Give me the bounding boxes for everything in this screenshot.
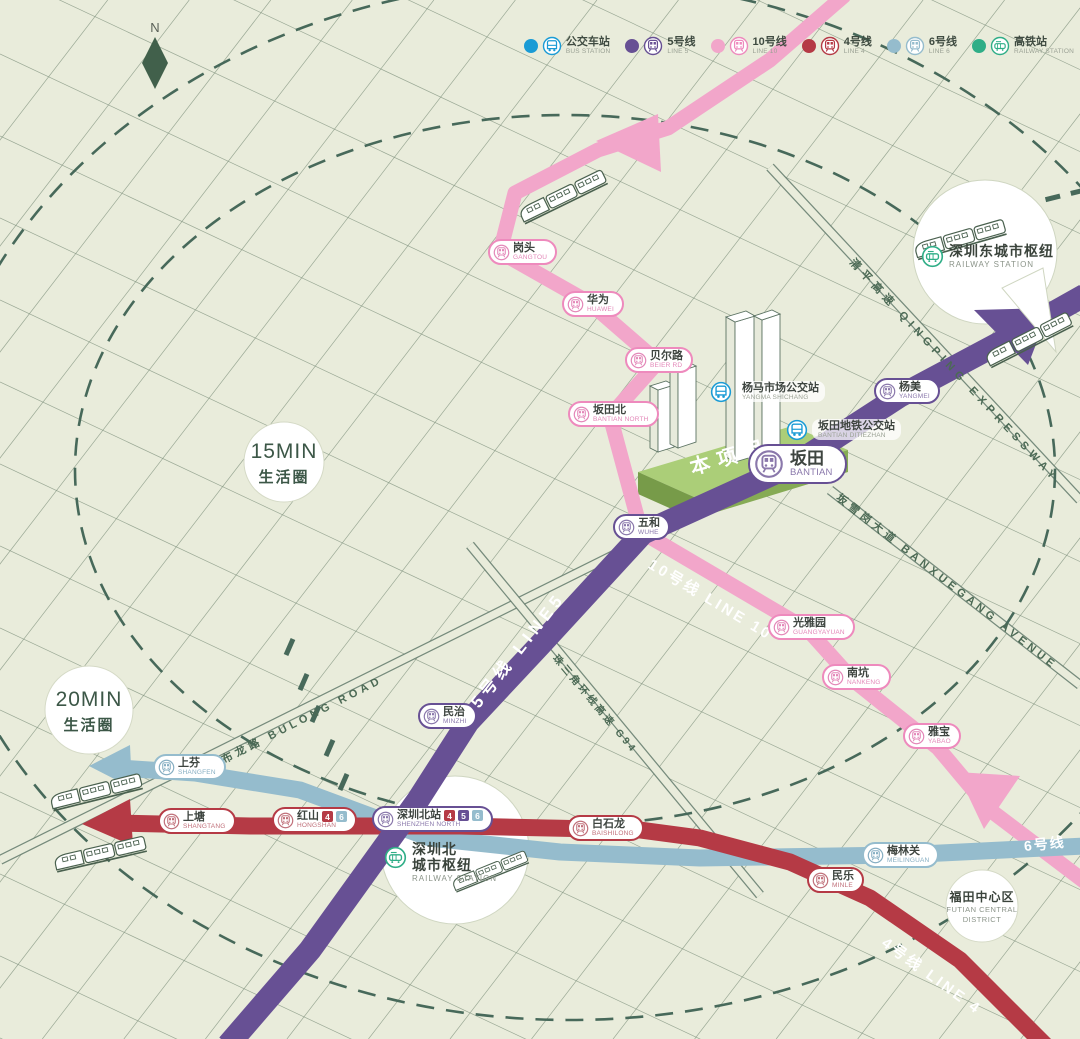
- futian-district-circle: 福田中心区 FUTIAN CENTRAL DISTRICT: [922, 888, 1042, 925]
- station-gangtou: 岗头 GANGTOU: [488, 239, 557, 265]
- station-shangtang: 上塘 SHANGTANG: [158, 808, 236, 834]
- metro-icon: [643, 36, 663, 56]
- line6-badge: 6: [336, 811, 347, 822]
- bus-icon: [786, 419, 808, 441]
- station-guangyayuan: 光雅园 GUANGYAYUAN: [768, 614, 855, 640]
- legend-label: 10号线: [753, 36, 787, 48]
- legend-sublabel: LINE 4: [844, 48, 872, 55]
- legend-dot-line6: [887, 39, 901, 53]
- station-wuhe: 五和 WUHE: [613, 514, 670, 540]
- metro-icon: [905, 36, 925, 56]
- station-shangfen: 上芬 SHANGFEN: [153, 754, 226, 780]
- legend-line6: 6号线 LINE 6: [887, 36, 957, 56]
- legend-railway-station: 高铁站 RAILWAY STATION: [972, 36, 1074, 56]
- station-yangmei: 杨美 YANGMEI: [874, 378, 940, 404]
- station-name-en: MINLE: [832, 883, 854, 890]
- bus-stop-name: 坂田地铁公交站: [818, 420, 895, 432]
- line5-badge: 5: [458, 810, 469, 821]
- legend-dot-line5: [625, 39, 639, 53]
- station-name: 雅宝: [928, 727, 951, 739]
- station-name-en: SHENZHEN NORTH: [397, 822, 483, 829]
- station-name: 梅林关: [887, 846, 929, 858]
- station-yabao: 雅宝 YABAO: [903, 723, 961, 749]
- compass: N: [138, 20, 172, 94]
- legend-label: 6号线: [929, 36, 957, 48]
- station-name: 上芬: [178, 758, 216, 770]
- station-name-en: GANGTOU: [513, 255, 547, 262]
- station-name: 民乐: [832, 871, 854, 883]
- metro-icon: [630, 352, 647, 369]
- station-name-en: SHANGFEN: [178, 770, 216, 777]
- legend-dot-line10: [711, 39, 725, 53]
- metro-icon: [827, 669, 844, 686]
- legend-bus-station: 公交车站 BUS STATION: [524, 36, 611, 56]
- station-baishilong: 白石龙 BAISHILONG: [567, 815, 644, 841]
- east-hub-label: 深圳东城市枢纽 RAILWAY STATION: [921, 243, 1054, 269]
- legend-sublabel: BUS STATION: [566, 48, 611, 55]
- station-name-en: SHANGTANG: [183, 824, 226, 831]
- bus-stop-name: 杨马市场公交站: [742, 382, 819, 394]
- legend-dot-line4: [802, 39, 816, 53]
- hub-name: 城市枢纽: [412, 857, 472, 873]
- station-minle: 民乐 MINLE: [807, 867, 864, 893]
- station-name: 坂田北: [593, 405, 649, 417]
- station-name: 杨美: [899, 382, 930, 394]
- legend-dot-rail: [972, 39, 986, 53]
- legend-sublabel: RAILWAY STATION: [1014, 48, 1074, 55]
- metro-icon: [867, 847, 884, 864]
- station-name: 岗头: [513, 243, 547, 255]
- station-name-en: BANTIAN: [790, 468, 833, 478]
- station-name-en: GUANGYAYUAN: [793, 630, 845, 637]
- hub-name-en: RAILWAY STATION: [949, 260, 1054, 269]
- station-name: 深圳北站: [397, 810, 441, 822]
- bus-stop-bantian-ditie: 坂田地铁公交站 BANTIAN DITIEZHAN: [786, 419, 901, 441]
- metro-icon: [423, 708, 440, 725]
- district-name-en: FUTIAN CENTRAL: [922, 905, 1042, 915]
- metro-icon: [277, 812, 294, 829]
- station-name-en: MINZHI: [443, 719, 467, 726]
- station-huawei: 华为 HUAWEI: [562, 291, 624, 317]
- bus-stop-name-en: BANTIAN DITIEZHAN: [818, 432, 895, 439]
- line6-badge: 6: [472, 810, 483, 821]
- railway-icon: [384, 846, 407, 869]
- map-artwork: [0, 0, 1080, 1039]
- legend-label: 5号线: [667, 36, 695, 48]
- legend-dot-bus: [524, 39, 538, 53]
- station-name-en: YABAO: [928, 739, 951, 746]
- station-name-en: YANGMEI: [899, 394, 930, 401]
- legend-label: 公交车站: [566, 36, 611, 48]
- hub-name: 深圳北: [412, 841, 472, 857]
- transit-map: N 公交车站 BUS STATION 5号线 LINE 5 10号线 LINE …: [0, 0, 1080, 1039]
- north-hub-label: 深圳北 城市枢纽 RAILWAY STATION: [384, 841, 497, 883]
- station-name-en: BEIER RD: [650, 363, 683, 370]
- metro-icon: [573, 406, 590, 423]
- metro-icon: [163, 813, 180, 830]
- district-name-en: DISTRICT: [922, 915, 1042, 925]
- life-circle-caption: 生活圈: [224, 466, 344, 487]
- metro-icon: [729, 36, 749, 56]
- station-name-en: NANKENG: [847, 680, 881, 687]
- line4-badge: 4: [322, 811, 333, 822]
- metro-icon: [754, 449, 784, 479]
- life-circle-time: 20MIN: [29, 688, 149, 712]
- metro-icon: [908, 728, 925, 745]
- legend-line4: 4号线 LINE 4: [802, 36, 872, 56]
- station-name: 贝尔路: [650, 351, 683, 363]
- station-name: 民治: [443, 707, 467, 719]
- line4-badge: 4: [444, 810, 455, 821]
- station-name: 红山: [297, 811, 319, 823]
- station-name-en: HONGSHAN: [297, 823, 347, 830]
- station-name: 华为: [587, 295, 614, 307]
- metro-icon: [879, 383, 896, 400]
- station-shenzhenbei: 深圳北站 4 5 6 SHENZHEN NORTH: [372, 806, 493, 832]
- station-name-en: BAISHILONG: [592, 831, 634, 838]
- metro-icon: [377, 811, 394, 828]
- railway-icon: [990, 36, 1010, 56]
- station-name: 上塘: [183, 812, 226, 824]
- metro-icon: [618, 519, 635, 536]
- compass-n-label: N: [138, 20, 172, 35]
- district-name: 福田中心区: [922, 888, 1042, 905]
- bus-icon: [710, 381, 732, 403]
- station-name: 白石龙: [592, 819, 634, 831]
- station-name: 光雅园: [793, 618, 845, 630]
- station-minzhi: 民治 MINZHI: [418, 703, 477, 729]
- station-beierlu: 贝尔路 BEIER RD: [625, 347, 693, 373]
- legend-label: 4号线: [844, 36, 872, 48]
- metro-icon: [567, 296, 584, 313]
- metro-icon: [820, 36, 840, 56]
- station-name: 五和: [638, 518, 660, 530]
- legend-label: 高铁站: [1014, 36, 1074, 48]
- station-nankeng: 南坑 NANKENG: [822, 664, 891, 690]
- life-circle-15min: 15MIN 生活圈: [224, 440, 344, 487]
- legend: 公交车站 BUS STATION 5号线 LINE 5 10号线 LINE 10…: [524, 36, 1074, 56]
- compass-diamond-icon: [138, 37, 172, 89]
- station-name: 南坑: [847, 668, 881, 680]
- station-bantian: 坂田 BANTIAN: [748, 444, 847, 484]
- metro-icon: [572, 820, 589, 837]
- station-name-en: HUAWEI: [587, 307, 614, 314]
- life-circle-time: 15MIN: [224, 440, 344, 464]
- life-circle-caption: 生活圈: [29, 714, 149, 735]
- hub-name: 深圳东城市枢纽: [949, 243, 1054, 259]
- station-meilinguan: 梅林关 MEILINGUAN: [862, 842, 939, 868]
- metro-icon: [812, 872, 829, 889]
- legend-sublabel: LINE 6: [929, 48, 957, 55]
- railway-icon: [921, 245, 944, 268]
- metro-icon: [493, 244, 510, 261]
- hub-name-en: RAILWAY STATION: [412, 874, 497, 883]
- station-name-en: WUHE: [638, 530, 660, 537]
- station-hongshan: 红山 4 6 HONGSHAN: [272, 807, 357, 833]
- station-bantianbei: 坂田北 BANTIAN NORTH: [568, 401, 659, 427]
- metro-icon: [773, 619, 790, 636]
- station-name: 坂田: [790, 450, 833, 468]
- bus-stop-name-en: YANGMA SHICHANG: [742, 394, 819, 401]
- metro-icon: [158, 759, 175, 776]
- bus-icon: [542, 36, 562, 56]
- life-circle-20min: 20MIN 生活圈: [29, 688, 149, 735]
- legend-line10: 10号线 LINE 10: [711, 36, 787, 56]
- legend-line5: 5号线 LINE 5: [625, 36, 695, 56]
- station-name-en: BANTIAN NORTH: [593, 417, 649, 424]
- legend-sublabel: LINE 10: [753, 48, 787, 55]
- legend-sublabel: LINE 5: [667, 48, 695, 55]
- station-name-en: MEILINGUAN: [887, 858, 929, 865]
- bus-stop-yangma: 杨马市场公交站 YANGMA SHICHANG: [710, 381, 825, 403]
